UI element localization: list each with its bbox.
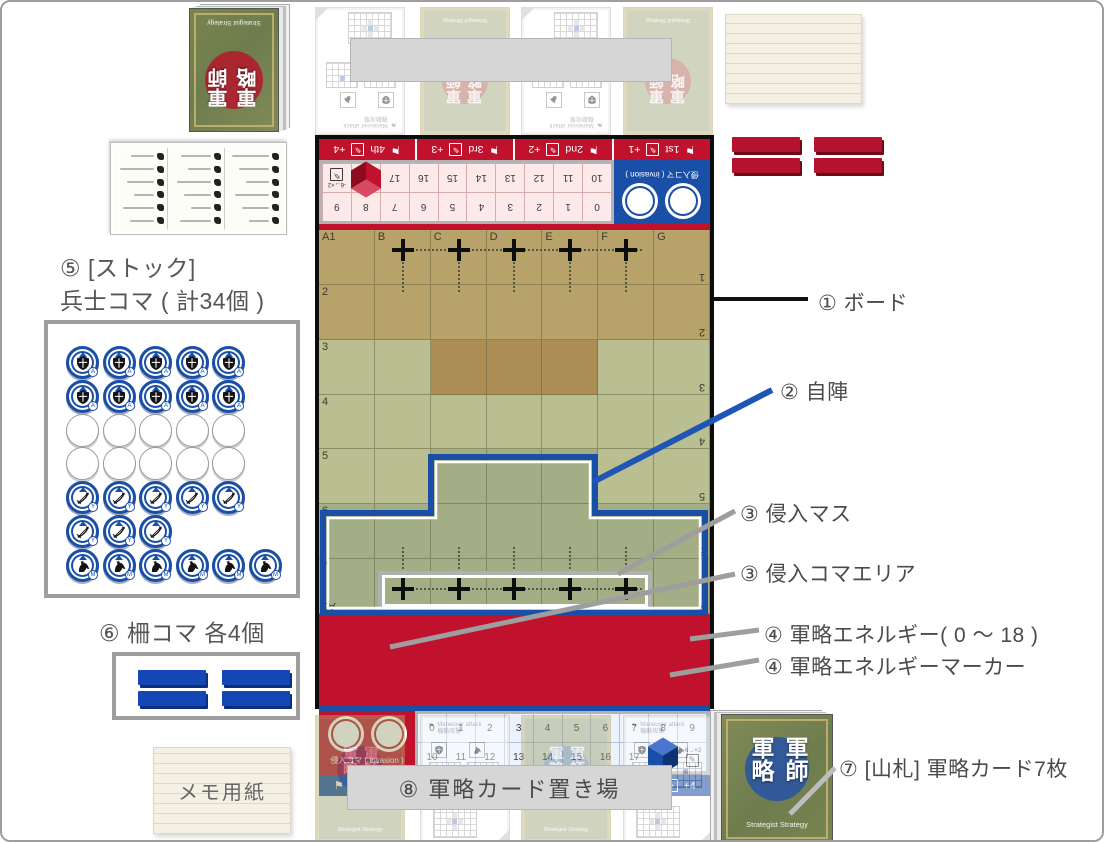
blue-fence-box xyxy=(112,652,300,720)
energy-cell: 3 xyxy=(495,192,524,221)
card-header-text: Maneuver attack機動攻撃 xyxy=(549,114,593,128)
bow-piece: Y xyxy=(139,481,172,514)
invasion-circle-center xyxy=(671,188,697,214)
energy-label: ④ 軍略エネルギー( 0 〜 18 ) xyxy=(764,619,1039,649)
reference-card-row xyxy=(175,191,221,198)
blank-piece xyxy=(212,414,245,447)
piece-badge: A xyxy=(161,367,171,377)
energy-cell: 9 xyxy=(322,192,351,221)
reference-text-line xyxy=(120,168,154,170)
reference-icon xyxy=(157,191,164,198)
card-title-jp: 機動攻撃 xyxy=(549,114,593,121)
flag-icon: ⚑ xyxy=(589,143,599,156)
reference-card-row xyxy=(175,204,221,211)
grid-cell xyxy=(598,449,654,504)
card-area-banner: ⑧ 軍略カード置き場 xyxy=(347,765,672,810)
blank-piece xyxy=(139,414,172,447)
reference-card-row xyxy=(118,179,164,186)
blue-fence-piece xyxy=(138,691,206,706)
energy-cell: 1 xyxy=(553,192,582,221)
card-back-subtitle: Strategist Strategy xyxy=(316,827,404,833)
reference-icon xyxy=(214,191,221,198)
reference-text-line xyxy=(181,155,211,157)
deck-title-characters: 軍師軍略 xyxy=(205,56,263,108)
reference-card-row xyxy=(118,204,164,211)
blank-piece xyxy=(176,447,209,480)
shield-icon xyxy=(184,389,200,405)
blank-piece xyxy=(103,414,136,447)
grid-cell xyxy=(598,395,654,450)
grid-cell: 5 xyxy=(654,449,710,504)
cell-row-label: 2 xyxy=(322,286,328,298)
energy-cell: 16 xyxy=(409,163,438,192)
card-title-en: Maneuver attack xyxy=(343,121,387,128)
reference-card-row xyxy=(232,204,279,211)
grid-highlight xyxy=(340,76,345,81)
grid-cell xyxy=(431,285,487,340)
piece-badge: Y xyxy=(125,502,135,512)
reference-card-row xyxy=(118,191,164,198)
grid-highlight xyxy=(568,26,573,31)
grid-highlight xyxy=(574,32,579,37)
blank-piece xyxy=(212,447,245,480)
turn-segment: ⚑3rd✎+3 xyxy=(415,139,513,160)
note-icon: ✎ xyxy=(449,143,462,156)
grid-highlight xyxy=(580,26,585,31)
grid-highlight xyxy=(655,813,660,818)
reference-card-row xyxy=(118,153,164,160)
reference-icon xyxy=(272,191,279,198)
turn-ordinal: 1st xyxy=(665,144,679,156)
shield-icon xyxy=(584,92,600,108)
horse-icon xyxy=(111,558,127,574)
invasion-circle-center xyxy=(628,188,654,214)
grid-highlight xyxy=(452,825,457,830)
shield-icon xyxy=(431,742,447,758)
cell-column-label: C xyxy=(434,231,442,243)
grid-highlight xyxy=(649,819,654,824)
invasion-circle xyxy=(623,183,659,219)
piece-badge: Y xyxy=(125,536,135,546)
energy-penalty-cell: -6→×2✎ xyxy=(322,163,351,192)
piece-badge: A xyxy=(234,367,244,377)
energy-cell: 6 xyxy=(409,192,438,221)
reference-icon xyxy=(157,217,164,224)
grid-cell: 2 xyxy=(654,285,710,340)
blank-piece xyxy=(139,447,172,480)
shield-icon xyxy=(111,389,127,405)
reference-text-line xyxy=(239,168,269,170)
reference-card-row xyxy=(232,179,279,186)
reference-icon xyxy=(157,204,164,211)
horse-icon xyxy=(546,92,562,108)
red-memo-paper xyxy=(725,14,862,104)
shield-icon xyxy=(111,355,127,371)
grid-highlight xyxy=(574,20,579,25)
grid-cell xyxy=(431,449,487,504)
grid-cell: 6 xyxy=(319,504,375,559)
blue-fence-piece xyxy=(138,670,206,685)
invasion-circles xyxy=(623,183,702,219)
energy-cell: 12 xyxy=(524,163,553,192)
grid-highlight xyxy=(574,26,579,31)
reference-text-line xyxy=(249,220,269,222)
grid-cell: 7 xyxy=(654,559,710,614)
card-main-grid xyxy=(636,806,680,838)
reference-card-column xyxy=(172,148,225,229)
card-area-banner-label: ⑧ 軍略カード置き場 xyxy=(399,772,621,804)
cell-mirrored-row-label: 3 xyxy=(699,381,705,393)
shield-piece: A xyxy=(176,346,209,379)
reference-text-line xyxy=(242,207,269,209)
card-back-subtitle: Strategist Strategy xyxy=(522,827,610,833)
bow-icon xyxy=(111,524,127,540)
turn-ordinal: 2nd xyxy=(565,144,583,156)
energy-cell: 11 xyxy=(553,163,582,192)
card-back-subtitle: Strategist Strategy xyxy=(421,17,509,23)
piece-badge: M xyxy=(271,570,281,580)
energy-marker-label: ④ 軍略エネルギーマーカー xyxy=(764,651,1026,681)
reference-icon xyxy=(272,217,279,224)
invasion-plus-mark xyxy=(448,239,470,261)
shield-piece: A xyxy=(139,346,172,379)
reference-text-line xyxy=(184,194,211,196)
reference-icon xyxy=(272,204,279,211)
piece-badge: A xyxy=(125,367,135,377)
cell-row-label: 6 xyxy=(322,505,328,517)
horse-icon xyxy=(257,558,273,574)
blank-piece xyxy=(176,414,209,447)
flag-icon: ⚑ xyxy=(391,143,401,156)
reference-card xyxy=(110,142,287,235)
reference-text-line xyxy=(131,155,154,157)
bow-piece: Y xyxy=(139,515,172,548)
energy-cell: 13 xyxy=(495,163,524,192)
memo-paper-label: メモ用紙 xyxy=(178,776,266,805)
piece-badge: Y xyxy=(198,502,208,512)
card-header-text: Maneuver attack機動攻撃 xyxy=(437,722,481,736)
invasion-box-label: 侵入コマ ( invasion ) xyxy=(625,169,698,180)
grid-cell xyxy=(431,395,487,450)
cell-column-label: D xyxy=(490,231,498,243)
flag-icon: ⚑ xyxy=(685,143,695,156)
grid-cell xyxy=(598,340,654,395)
grid-highlight xyxy=(374,26,379,31)
shield-icon xyxy=(378,92,394,108)
reference-icon xyxy=(214,153,221,160)
grid-cell xyxy=(542,449,598,504)
grid-cell: G1 xyxy=(654,230,710,285)
card-corner-fold xyxy=(522,8,534,20)
turn-bonus: +2 xyxy=(528,144,540,156)
card-header-text: Maneuver attack機動攻撃 xyxy=(640,722,684,736)
piece-badge: A xyxy=(88,367,98,377)
turn-bonus: +3 xyxy=(431,144,443,156)
reference-text-line xyxy=(232,155,269,157)
bow-piece: Y xyxy=(66,481,99,514)
grid-cell: 3 xyxy=(654,340,710,395)
grid-highlight xyxy=(368,32,373,37)
horse-piece: M xyxy=(249,549,282,582)
grid-cell: 3 xyxy=(319,340,375,395)
grid-cell xyxy=(375,395,431,450)
cell-mirrored-corner-label: A1 xyxy=(322,600,335,612)
bow-piece: Y xyxy=(103,515,136,548)
shield-piece: A xyxy=(139,380,172,413)
energy-cell: 0 xyxy=(582,192,611,221)
red-fence-piece xyxy=(732,137,800,152)
invasion-plus-mark xyxy=(559,239,581,261)
red-fence-piece xyxy=(814,137,882,152)
horse-icon xyxy=(184,558,200,574)
card-title-jp: 機動攻撃 xyxy=(437,729,481,736)
horse-icon xyxy=(469,742,485,758)
energy-cell: 5 xyxy=(438,192,467,221)
energy-marker-cell xyxy=(351,163,380,192)
card-back-subtitle: Strategist Strategy xyxy=(624,17,712,23)
reference-card-row xyxy=(232,191,279,198)
reference-card-column xyxy=(115,148,168,229)
card-main-grid xyxy=(433,806,477,838)
turn-segment: ⚑2nd✎+2 xyxy=(514,139,612,160)
red-strategy-card-deck: 軍師軍略 Strategist Strategy xyxy=(189,8,279,132)
horse-piece: M xyxy=(139,549,172,582)
energy-cell: 15 xyxy=(438,163,467,192)
cell-column-label: G xyxy=(657,231,666,243)
reference-icon xyxy=(157,153,164,160)
reference-text-line xyxy=(130,220,154,222)
energy-cell: 2 xyxy=(524,192,553,221)
reference-icon xyxy=(214,217,221,224)
grid-cell: 6 xyxy=(654,504,710,559)
deck-label: ⑦ [山札] 軍略カード7枚 xyxy=(839,753,1068,783)
grid-cell xyxy=(375,285,431,340)
shield-piece: A xyxy=(212,346,245,379)
deck-subtitle: Strategist Strategy xyxy=(190,19,278,26)
card-corner-fold xyxy=(700,830,712,842)
cell-row-label: 4 xyxy=(322,396,328,408)
shield-icon xyxy=(184,355,200,371)
piece-badge: Y xyxy=(161,502,171,512)
reference-card-row xyxy=(175,217,221,224)
card-title-jp: 機動攻撃 xyxy=(343,114,387,121)
bow-piece: Y xyxy=(212,481,245,514)
game-board: 侵入コマ ( invasion )01234567891011121314151… xyxy=(315,135,714,709)
grid-cell: 2 xyxy=(319,285,375,340)
blue-strategy-card-deck: 軍師軍略 Strategist Strategy xyxy=(721,714,833,842)
cell-mirrored-row-label: 1 xyxy=(699,271,705,283)
reference-text-line xyxy=(188,168,211,170)
grid-highlight xyxy=(661,819,666,824)
reference-text-line xyxy=(123,207,154,209)
stock-label-line2: 兵士コマ ( 計34個 ) xyxy=(60,282,265,316)
reference-icon xyxy=(157,166,164,173)
blank-piece xyxy=(103,447,136,480)
horse-piece: M xyxy=(212,549,245,582)
reference-text-line xyxy=(127,181,154,183)
flag-icon: ⚑ xyxy=(428,722,434,730)
invasion-piece-area-box xyxy=(378,571,652,611)
grid-cell: 4 xyxy=(319,395,375,450)
reference-text-line xyxy=(134,194,154,196)
shield-piece: A xyxy=(66,346,99,379)
reference-card-row xyxy=(175,179,221,186)
grid-cell xyxy=(375,449,431,504)
fence-label: ⑥ 柵コマ 各4個 xyxy=(99,614,265,648)
piece-badge: Y xyxy=(88,502,98,512)
flag-icon: ⚑ xyxy=(597,120,603,128)
grid-cell xyxy=(598,285,654,340)
invasion-circle xyxy=(666,183,702,219)
red-fence-piece xyxy=(814,158,882,173)
deck-subtitle: Strategist Strategy xyxy=(722,820,832,829)
grid-cell xyxy=(487,395,543,450)
invasion-squares-label: ③ 侵入マス xyxy=(740,498,852,528)
reference-icon xyxy=(214,179,221,186)
reference-text-line xyxy=(246,181,269,183)
invasion-plus-mark xyxy=(503,239,525,261)
energy-cell: 4 xyxy=(466,192,495,221)
piece-badge: A xyxy=(161,401,171,411)
soldier-piece-stock-box: AAAAAAAAAAYYYYYYYYMMMMMM xyxy=(44,320,300,598)
reference-card-row xyxy=(118,166,164,173)
note-icon: ✎ xyxy=(646,143,659,156)
red-track-row: 侵入コマ ( invasion )01234567891011121314151… xyxy=(319,160,710,224)
reference-icon xyxy=(272,153,279,160)
cell-mirrored-row-label: 2 xyxy=(699,326,705,338)
reference-card-column xyxy=(229,148,282,229)
grid-cell xyxy=(431,340,487,395)
cell-row-label: 7 xyxy=(322,560,328,572)
grid-cell xyxy=(487,449,543,504)
memo-paper: メモ用紙 xyxy=(153,747,291,834)
horse-piece: M xyxy=(66,549,99,582)
shield-piece: A xyxy=(66,380,99,413)
reference-icon xyxy=(272,166,279,173)
shield-piece: A xyxy=(103,346,136,379)
energy-cell: 17 xyxy=(380,163,409,192)
grid-highlight xyxy=(368,20,373,25)
red-player-section: 侵入コマ ( invasion )01234567891011121314151… xyxy=(319,139,710,230)
horse-piece: M xyxy=(103,549,136,582)
energy-track: 01234567891011121314151617-6→×2✎ xyxy=(319,160,614,224)
horse-piece: M xyxy=(176,549,209,582)
piece-badge: Y xyxy=(161,536,171,546)
piece-badge: A xyxy=(198,367,208,377)
stock-label-line1: ⑤ [ストック] xyxy=(60,249,196,283)
card-title-jp: 機動攻撃 xyxy=(640,729,684,736)
note-icon: ✎ xyxy=(546,143,559,156)
flag-icon: ⚑ xyxy=(631,722,637,730)
red-turn-strip: ⚑1st✎+1⚑2nd✎+2⚑3rd✎+3⚑4th✎+4 xyxy=(319,139,710,160)
piece-badge: M xyxy=(161,570,171,580)
cell-column-label: F xyxy=(601,231,608,243)
piece-badge: Y xyxy=(234,502,244,512)
bow-piece: Y xyxy=(66,515,99,548)
grid-highlight xyxy=(452,819,457,824)
energy-cell: 14 xyxy=(466,163,495,192)
card-header: ⚑Maneuver attack機動攻撃 xyxy=(549,114,603,128)
grid-cell xyxy=(375,340,431,395)
reference-icon xyxy=(157,179,164,186)
red-fence-piece xyxy=(732,158,800,173)
turn-bonus: +4 xyxy=(333,144,345,156)
cell-mirrored-row-label: 7 xyxy=(699,600,705,612)
card-corner-fold xyxy=(316,8,328,20)
deck-title-characters: 軍師軍略 xyxy=(743,736,811,796)
penalty-text: -6→×2 xyxy=(328,182,346,188)
note-icon: ✎ xyxy=(351,143,364,156)
grid-cell: 5 xyxy=(319,449,375,504)
reference-text-line xyxy=(177,181,211,183)
turn-ordinal: 3rd xyxy=(468,144,483,156)
piece-badge: M xyxy=(125,570,135,580)
grid-cell xyxy=(542,340,598,395)
flag-icon: ⚑ xyxy=(391,120,397,128)
shield-piece: A xyxy=(103,380,136,413)
card-header: ⚑Maneuver attack機動攻撃 xyxy=(428,722,482,736)
grid-highlight xyxy=(446,819,451,824)
shield-piece: A xyxy=(176,380,209,413)
energy-marker-cube xyxy=(349,161,383,199)
energy-cell: 7 xyxy=(380,192,409,221)
horse-icon xyxy=(340,92,356,108)
piece-badge: M xyxy=(88,570,98,580)
cell-mirrored-row-label: 6 xyxy=(699,545,705,557)
energy-cell: 10 xyxy=(582,163,611,192)
cell-column-label: A1 xyxy=(322,231,335,243)
reference-text-line xyxy=(180,220,211,222)
grid-highlight xyxy=(683,769,688,774)
reference-card-row xyxy=(175,153,221,160)
energy-track-row-2: 1011121314151617-6→×2✎ xyxy=(322,163,611,192)
grid-cell xyxy=(542,285,598,340)
piece-badge: A xyxy=(88,401,98,411)
reference-text-line xyxy=(191,207,211,209)
cell-mirrored-row-label: 4 xyxy=(699,435,705,447)
blank-piece xyxy=(66,447,99,480)
card-title-en: Maneuver attack xyxy=(549,121,593,128)
grid-cell: 4 xyxy=(654,395,710,450)
flag-icon: ⚑ xyxy=(490,143,500,156)
reference-text-line xyxy=(235,194,269,196)
note-icon: ✎ xyxy=(330,169,343,182)
red-card-area-banner xyxy=(350,38,672,82)
blue-fence-piece xyxy=(222,670,290,685)
piece-badge: Y xyxy=(88,536,98,546)
bow-piece: Y xyxy=(176,481,209,514)
reference-icon xyxy=(214,166,221,173)
grid-cell: 7A1 xyxy=(319,559,375,614)
own-territory-label: ② 自陣 xyxy=(780,376,849,406)
shield-piece: A xyxy=(212,380,245,413)
invasion-plus-mark xyxy=(615,239,637,261)
grid-highlight xyxy=(458,819,463,824)
piece-badge: A xyxy=(198,401,208,411)
card-header: ⚑Maneuver attack機動攻撃 xyxy=(343,114,397,128)
grid-highlight xyxy=(452,813,457,818)
reference-icon xyxy=(214,204,221,211)
turn-segment: ⚑4th✎+4 xyxy=(319,139,415,160)
grid-cell: A1 xyxy=(319,230,375,285)
grid-highlight xyxy=(368,26,373,31)
board-label: ① ボード xyxy=(818,287,908,317)
piece-badge: A xyxy=(125,401,135,411)
turn-bonus: +1 xyxy=(628,144,640,156)
blue-invasion-box: 侵入コマ ( invasion ) xyxy=(614,160,710,224)
blank-piece xyxy=(66,414,99,447)
piece-badge: M xyxy=(234,570,244,580)
